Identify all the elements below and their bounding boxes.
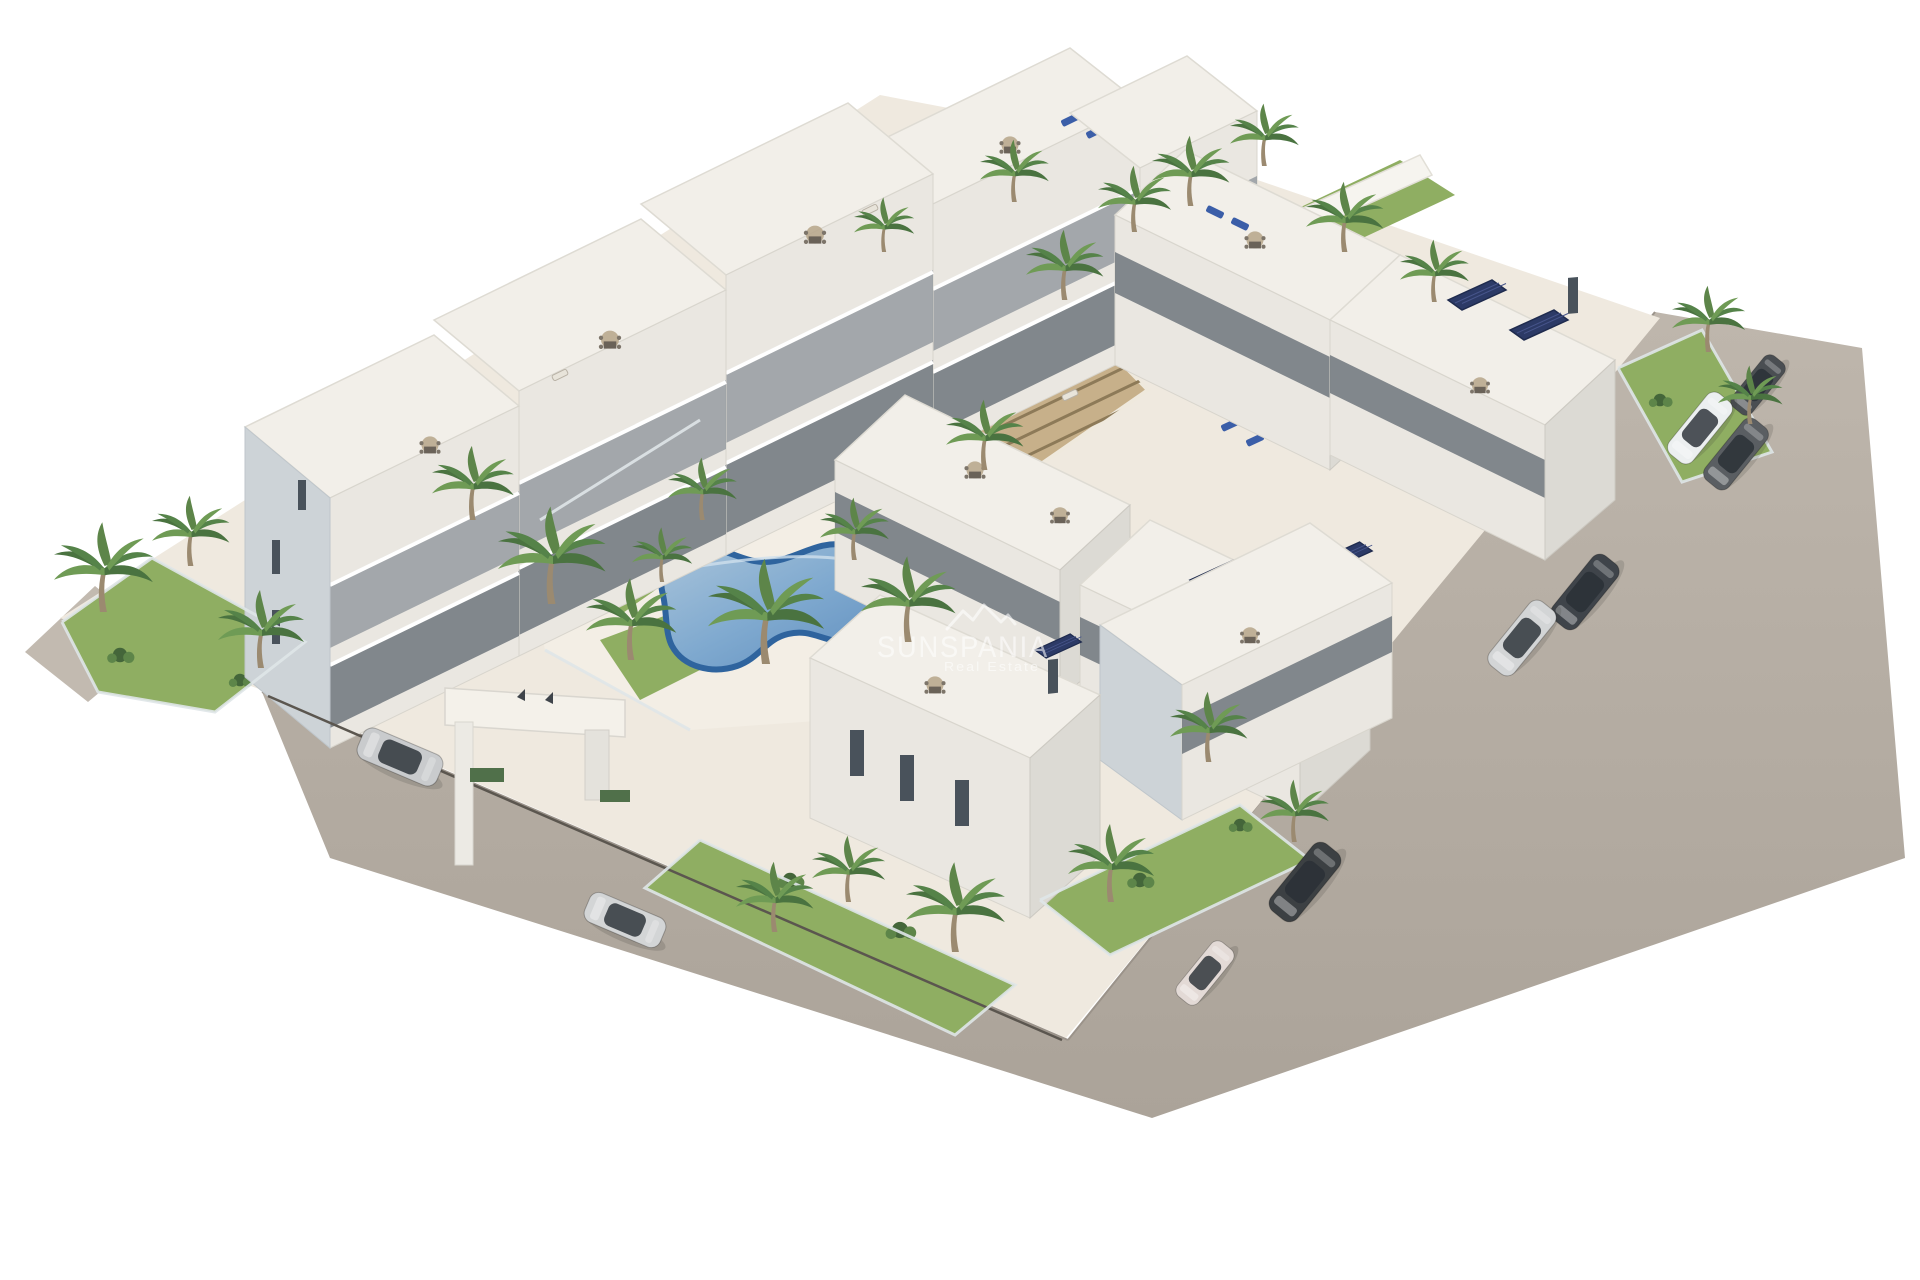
architectural-render: SUNSPANIA Real Estate [0,0,1920,1280]
render-canvas: SUNSPANIA Real Estate [0,0,1920,1280]
watermark-tagline: Real Estate [944,659,1040,674]
